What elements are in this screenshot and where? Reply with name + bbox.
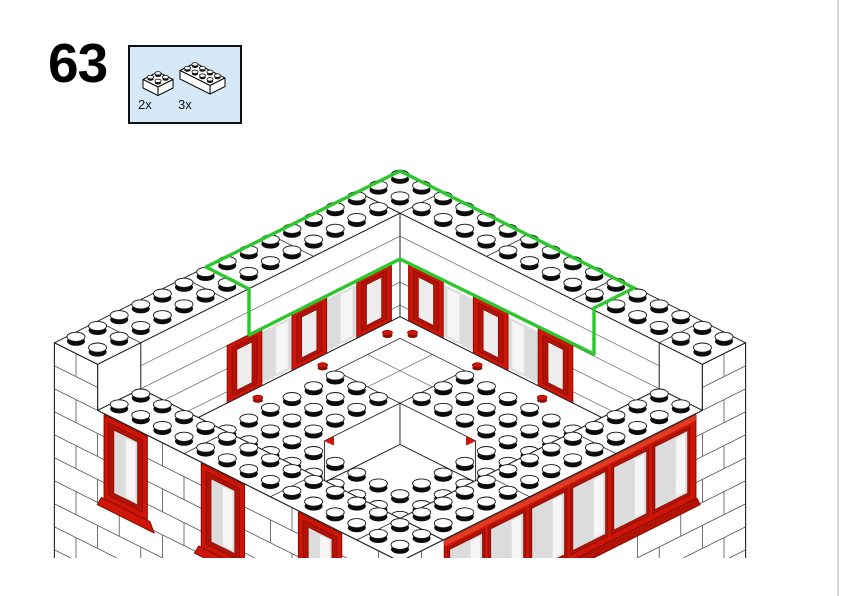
part-count-2x4: 3x: [178, 97, 192, 112]
parts-callout-box: 2x 3x: [128, 45, 242, 124]
page-edge-line: [837, 0, 839, 596]
part-count-2x2: 2x: [138, 97, 152, 112]
step-number: 63: [48, 36, 107, 91]
model-illustration: [0, 0, 842, 596]
instruction-page: 63 2x 3x: [0, 0, 842, 596]
